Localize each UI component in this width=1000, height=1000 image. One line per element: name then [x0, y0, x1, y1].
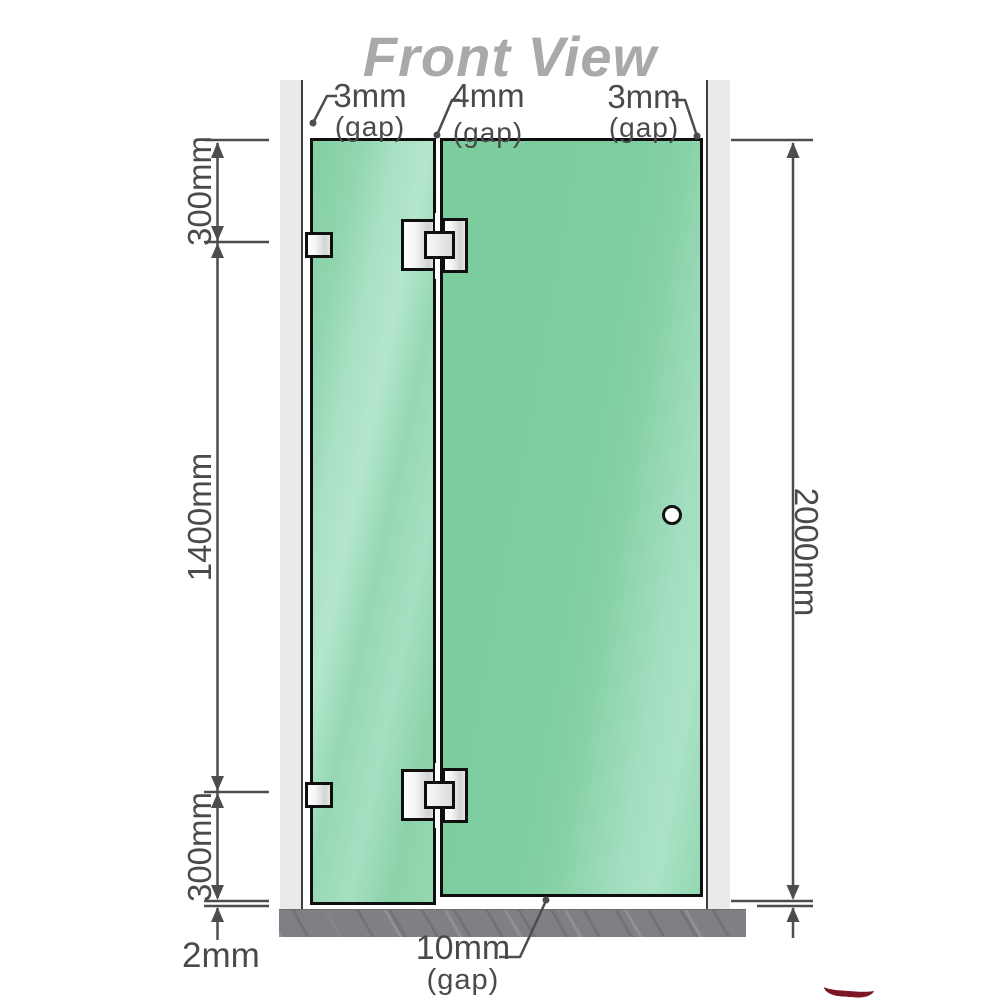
gap-value: 3mm — [602, 80, 686, 113]
gap-note: (gap) — [413, 966, 513, 995]
right-wall — [706, 80, 730, 909]
wall-bracket-bottom — [305, 782, 333, 808]
gap-value: 10mm — [413, 931, 513, 965]
wall-bracket-top — [305, 232, 333, 258]
glass-gap-channel — [433, 213, 442, 233]
gap-value: 4mm — [446, 79, 530, 112]
front-view-diagram: Front View — [0, 0, 1000, 1000]
hinge-pivot-tab — [424, 231, 455, 259]
dimension-label-middle-left: 1400mm — [183, 432, 217, 602]
gap-label-top-left: 3mm (gap) — [328, 79, 412, 141]
gap-label-top-right: 3mm (gap) — [602, 80, 686, 142]
glass-gap-channel — [433, 763, 442, 783]
glass-gap-channel — [433, 806, 442, 828]
gap-label-top-middle: 4mm (gap) — [446, 79, 530, 147]
dimension-label-top-left: 300mm — [183, 121, 217, 261]
gap-note: (gap) — [602, 114, 686, 142]
glass-gap-channel — [433, 257, 442, 279]
left-wall — [280, 80, 303, 909]
hinge-pivot-tab — [424, 781, 455, 809]
dimension-label-bottom-left: 300mm — [183, 777, 217, 917]
dimension-label-floor-clearance: 2mm — [182, 936, 292, 976]
gap-note: (gap) — [328, 113, 412, 141]
gap-note: (gap) — [446, 119, 530, 147]
gap-value: 3mm — [328, 79, 412, 112]
gap-label-bottom: 10mm (gap) — [413, 931, 513, 995]
door-handle-knob — [662, 505, 682, 525]
brand-logo-fragment — [823, 978, 874, 998]
dimension-label-right-height: 2000mm — [789, 462, 823, 642]
